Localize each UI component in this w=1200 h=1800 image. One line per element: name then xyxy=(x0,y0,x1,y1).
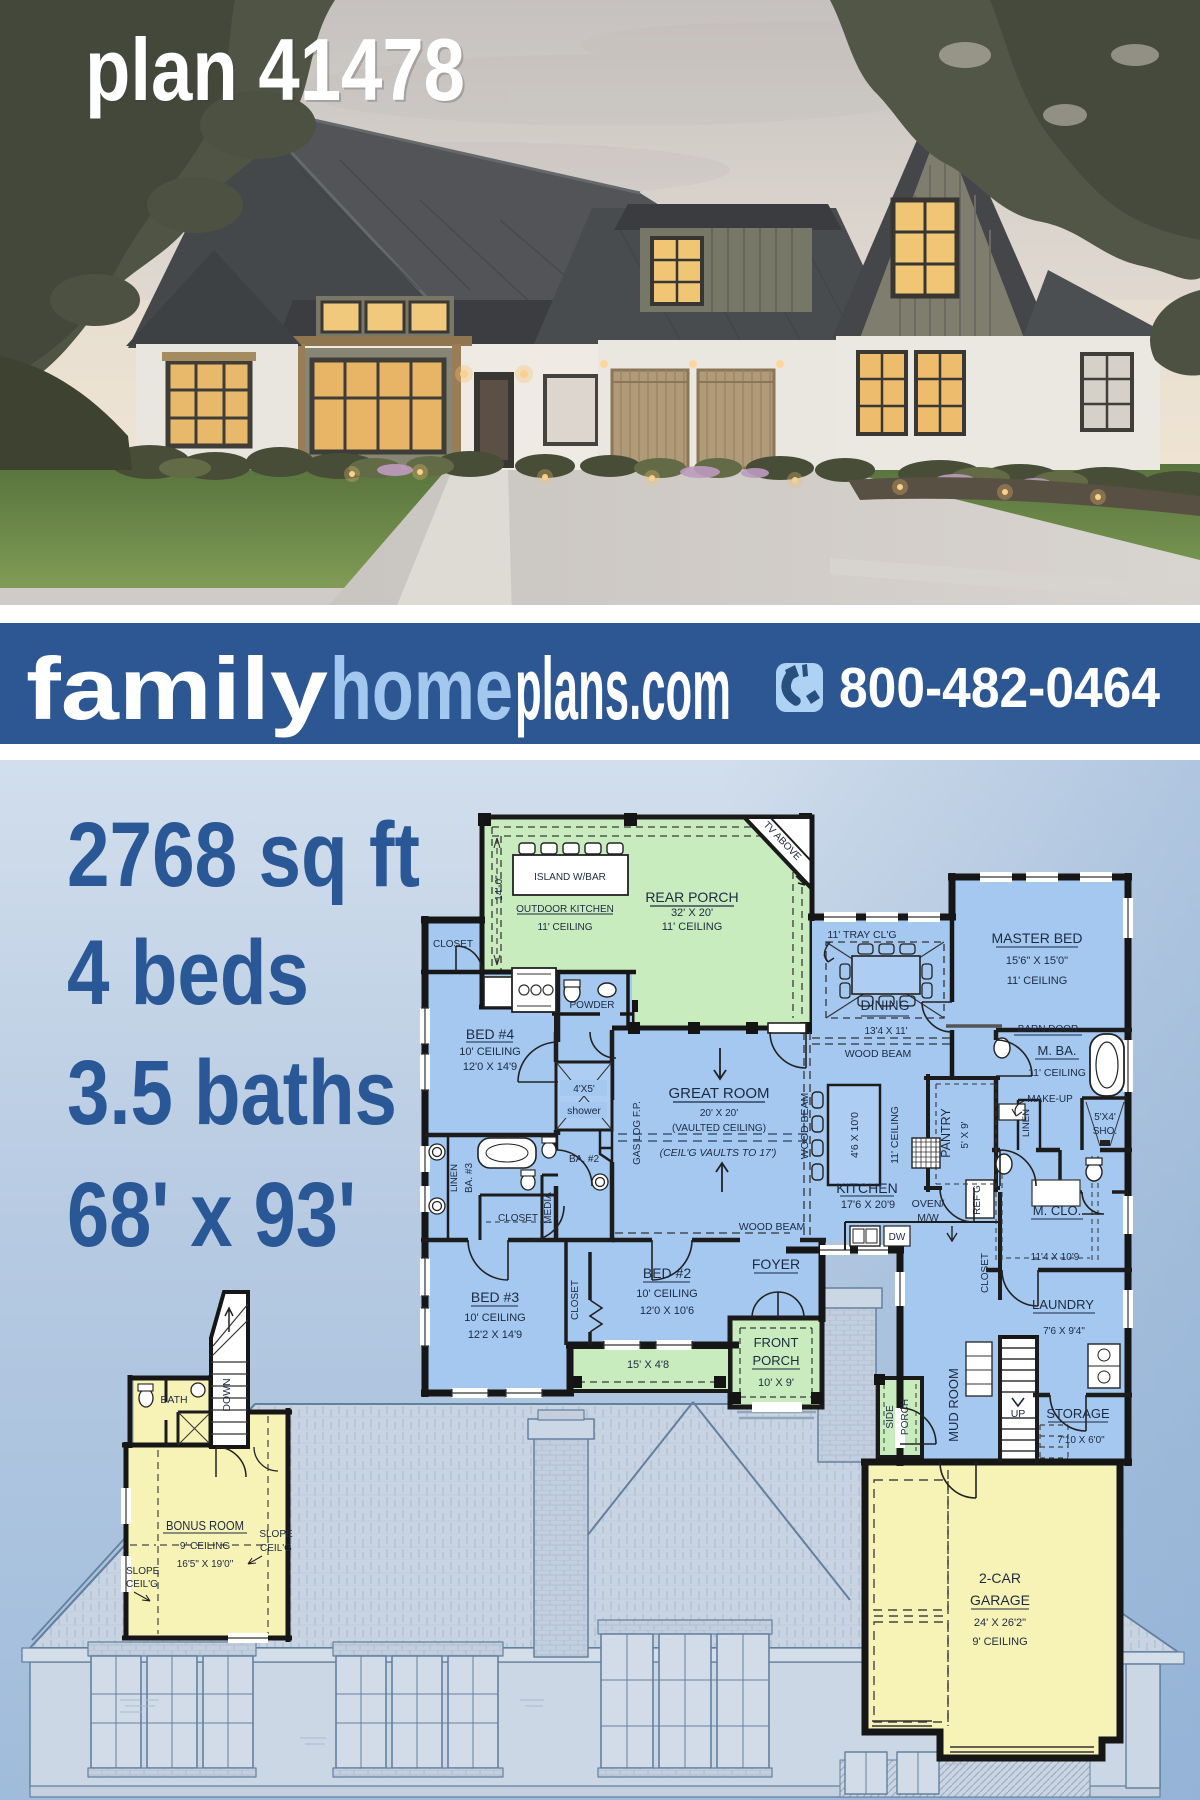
svg-text:11' CEILING: 11' CEILING xyxy=(1028,1067,1086,1079)
svg-text:UP: UP xyxy=(1011,1408,1026,1420)
svg-text:20' X 20': 20' X 20' xyxy=(700,1108,738,1119)
svg-text:10' CEILING: 10' CEILING xyxy=(464,1312,525,1324)
svg-text:9' CEILING: 9' CEILING xyxy=(972,1636,1027,1648)
svg-text:LINEN: LINEN xyxy=(1021,1109,1032,1137)
svg-text:PORCH: PORCH xyxy=(753,1353,800,1368)
svg-text:SLOPE: SLOPE xyxy=(126,1566,160,1577)
svg-text:10' X 9': 10' X 9' xyxy=(758,1377,794,1389)
svg-text:4'X5': 4'X5' xyxy=(573,1084,595,1095)
svg-text:CEIL'G: CEIL'G xyxy=(126,1579,158,1590)
svg-text:STORAGE: STORAGE xyxy=(1046,1406,1110,1421)
svg-text:OUTDOOR KITCHEN: OUTDOOR KITCHEN xyxy=(516,904,614,915)
svg-text:17'6 X 20'9: 17'6 X 20'9 xyxy=(841,1199,895,1211)
svg-text:7'6 X 9'4": 7'6 X 9'4" xyxy=(1043,1326,1085,1337)
svg-text:FRONT: FRONT xyxy=(754,1335,799,1350)
svg-text:CLOSET: CLOSET xyxy=(498,1213,538,1224)
svg-text:68' x 93': 68' x 93' xyxy=(67,1164,356,1266)
svg-text:(VAULTED CEILING): (VAULTED CEILING) xyxy=(672,1123,766,1134)
svg-text:BONUS ROOM: BONUS ROOM xyxy=(166,1518,244,1533)
svg-text:800-482-0464: 800-482-0464 xyxy=(839,656,1160,720)
svg-text:11'4 X 10'9: 11'4 X 10'9 xyxy=(1031,1252,1080,1263)
svg-text:WOOD BEAM: WOOD BEAM xyxy=(799,1093,811,1160)
svg-text:DW: DW xyxy=(889,1232,906,1243)
svg-text:7'10 X 6'0": 7'10 X 6'0" xyxy=(1057,1435,1105,1446)
svg-text:32' X 20': 32' X 20' xyxy=(671,907,713,919)
svg-text:DINING: DINING xyxy=(861,997,910,1013)
svg-text:PANTRY: PANTRY xyxy=(939,1108,953,1158)
svg-text:CLOSET: CLOSET xyxy=(570,1280,581,1320)
svg-text:LINEN: LINEN xyxy=(449,1164,460,1192)
svg-text:13'4 X 11': 13'4 X 11' xyxy=(864,1026,907,1037)
svg-text:CLOSET: CLOSET xyxy=(980,1253,991,1293)
svg-text:REAR PORCH: REAR PORCH xyxy=(645,889,738,905)
svg-text:GREAT ROOM: GREAT ROOM xyxy=(668,1085,769,1102)
svg-text:MEDIA: MEDIA xyxy=(543,1192,554,1224)
svg-text:15'6" X 15'0": 15'6" X 15'0" xyxy=(1006,955,1068,967)
svg-text:M. BA.: M. BA. xyxy=(1037,1043,1076,1058)
svg-text:11' CEILING: 11' CEILING xyxy=(662,921,723,933)
svg-text:WOOD BEAM: WOOD BEAM xyxy=(739,1221,806,1233)
svg-text:M. CLO.: M. CLO. xyxy=(1033,1203,1081,1218)
svg-text:plan 41478: plan 41478 xyxy=(85,20,465,119)
svg-text:plans.com: plans.com xyxy=(515,639,731,738)
svg-text:5' X 9': 5' X 9' xyxy=(960,1121,971,1148)
svg-text:PORCH: PORCH xyxy=(900,1399,911,1435)
svg-text:4'6 X 10'0: 4'6 X 10'0 xyxy=(849,1112,861,1158)
svg-text:5'X4': 5'X4' xyxy=(1094,1112,1116,1123)
svg-text:14'-0": 14'-0" xyxy=(494,875,505,901)
svg-text:MASTER BED: MASTER BED xyxy=(991,930,1082,946)
svg-text:ISLAND W/BAR: ISLAND W/BAR xyxy=(534,872,606,883)
svg-text:OVEN/: OVEN/ xyxy=(912,1198,945,1210)
svg-text:16'5" X 19'0": 16'5" X 19'0" xyxy=(177,1559,234,1570)
svg-text:POWDER: POWDER xyxy=(570,1000,615,1011)
svg-text:SHO.: SHO. xyxy=(1093,1126,1117,1137)
svg-text:M/W: M/W xyxy=(917,1212,939,1224)
svg-text:9' CEILING: 9' CEILING xyxy=(180,1541,230,1552)
svg-text:CEIL'G: CEIL'G xyxy=(260,1543,292,1554)
svg-text:shower: shower xyxy=(567,1105,601,1117)
svg-text:11' CEILING: 11' CEILING xyxy=(537,922,592,933)
svg-text:11' CEILING: 11' CEILING xyxy=(889,1106,901,1164)
svg-text:GARAGE: GARAGE xyxy=(970,1592,1030,1608)
svg-text:24' X 26'2": 24' X 26'2" xyxy=(974,1617,1026,1629)
svg-text:15' X 4'8: 15' X 4'8 xyxy=(627,1359,669,1371)
svg-text:(CEIL'G VAULTS TO 17'): (CEIL'G VAULTS TO 17') xyxy=(660,1147,777,1159)
svg-text:KITCHEN: KITCHEN xyxy=(836,1180,897,1196)
svg-text:BED #4: BED #4 xyxy=(466,1026,514,1042)
svg-text:12'2 X 14'9: 12'2 X 14'9 xyxy=(468,1329,522,1341)
svg-text:2-CAR: 2-CAR xyxy=(979,1570,1021,1586)
svg-text:BATH: BATH xyxy=(160,1394,187,1406)
svg-text:12'0 X 10'6: 12'0 X 10'6 xyxy=(640,1305,694,1317)
svg-text:10' CEILING: 10' CEILING xyxy=(636,1288,697,1300)
svg-text:BA. #3: BA. #3 xyxy=(464,1163,475,1193)
svg-text:BED #2: BED #2 xyxy=(643,1265,691,1281)
svg-text:12'0 X 14'9: 12'0 X 14'9 xyxy=(463,1061,517,1073)
svg-text:home: home xyxy=(330,639,513,738)
svg-text:BARN DOOR: BARN DOOR xyxy=(1018,1024,1079,1035)
svg-text:family: family xyxy=(26,639,328,738)
svg-text:SIDE: SIDE xyxy=(885,1405,896,1429)
svg-text:11' TRAY CL'G: 11' TRAY CL'G xyxy=(827,929,896,941)
svg-text:11' CEILING: 11' CEILING xyxy=(1007,975,1068,987)
svg-text:2768 sq ft: 2768 sq ft xyxy=(67,804,420,906)
svg-text:FOYER: FOYER xyxy=(752,1256,800,1272)
svg-text:MUD ROOM: MUD ROOM xyxy=(946,1368,961,1442)
svg-text:GAS LOG F.P.: GAS LOG F.P. xyxy=(632,1101,643,1165)
svg-text:WOOD BEAM: WOOD BEAM xyxy=(845,1048,912,1060)
svg-text:LAUNDRY: LAUNDRY xyxy=(1032,1297,1094,1312)
svg-text:10' CEILING: 10' CEILING xyxy=(459,1046,520,1058)
svg-text:MAKE-UP: MAKE-UP xyxy=(1027,1094,1073,1105)
svg-text:SLOPE: SLOPE xyxy=(259,1529,293,1540)
svg-text:BA. #2: BA. #2 xyxy=(569,1154,599,1165)
svg-text:4 beds: 4 beds xyxy=(67,922,309,1024)
svg-text:3.5 baths: 3.5 baths xyxy=(67,1042,397,1144)
svg-text:DOWN: DOWN xyxy=(221,1378,233,1411)
svg-text:BED #3: BED #3 xyxy=(471,1289,519,1305)
